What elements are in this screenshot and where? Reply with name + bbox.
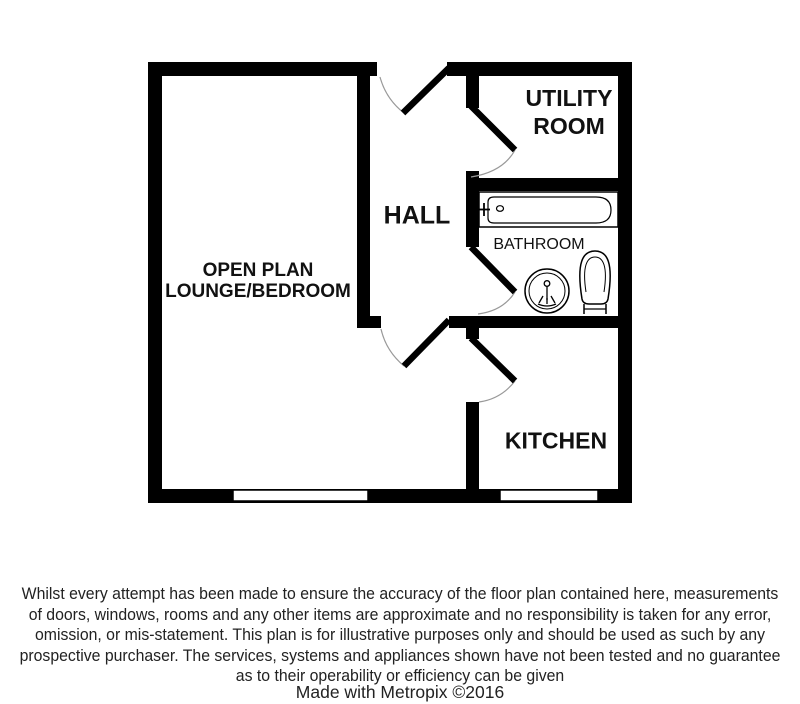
kitchen-door-arc xyxy=(479,381,515,402)
wall-kitchen-left xyxy=(466,402,479,489)
wall-lounge-hall xyxy=(357,62,370,316)
wall-lounge-foot xyxy=(357,316,381,328)
room-label-bathroom: BATHROOM xyxy=(493,236,584,254)
disclaimer-line-4: prospective purchaser. The services, sys… xyxy=(20,646,781,666)
room-label-lounge-line1: OPEN PLAN xyxy=(165,260,351,281)
window-kitchen xyxy=(500,490,598,501)
disclaimer-line-1: Whilst every attempt has been made to en… xyxy=(22,584,779,604)
room-label-utility-line1: UTILITY xyxy=(526,84,613,112)
wall-utility-stub-lower xyxy=(466,171,479,179)
room-label-lounge-line2: LOUNGE/BEDROOM xyxy=(165,281,351,302)
wall-hall-kitchen xyxy=(449,316,632,328)
wall-utility-bottom xyxy=(466,178,632,191)
front-door-leaf xyxy=(403,68,449,113)
credit-line: Made with Metropix ©2016 xyxy=(296,682,504,703)
wall-left xyxy=(148,62,162,503)
window-lounge xyxy=(233,490,368,501)
bathroom-door-arc xyxy=(478,292,515,314)
lounge-door-arc xyxy=(381,329,404,366)
wall-utility-stub-upper xyxy=(466,76,479,108)
toilet xyxy=(580,251,610,314)
kitchen-door-leaf xyxy=(471,338,515,381)
wall-top-right-segment xyxy=(447,62,632,76)
floorplan-page: OPEN PLAN LOUNGE/BEDROOM HALL UTILITY RO… xyxy=(0,0,800,704)
room-label-kitchen: KITCHEN xyxy=(505,428,607,455)
room-label-hall: HALL xyxy=(384,202,451,231)
disclaimer-line-2: of doors, windows, rooms and any other i… xyxy=(29,605,772,625)
room-label-lounge: OPEN PLAN LOUNGE/BEDROOM xyxy=(165,260,351,302)
bathtub xyxy=(478,192,618,227)
wall-top-left-segment xyxy=(148,62,377,76)
disclaimer-line-3: omission, or mis-statement. This plan is… xyxy=(35,625,765,645)
wall-bathroom-left xyxy=(466,191,479,247)
lounge-door-leaf xyxy=(404,320,449,366)
wall-right xyxy=(618,62,632,503)
front-door-arc xyxy=(380,77,404,113)
utility-door-leaf xyxy=(471,106,515,150)
bathtub-inner xyxy=(488,197,611,223)
room-label-utility-line2: ROOM xyxy=(526,112,613,140)
floorplan-drawing xyxy=(0,0,800,560)
sink xyxy=(525,269,569,313)
room-label-utility: UTILITY ROOM xyxy=(526,84,613,140)
